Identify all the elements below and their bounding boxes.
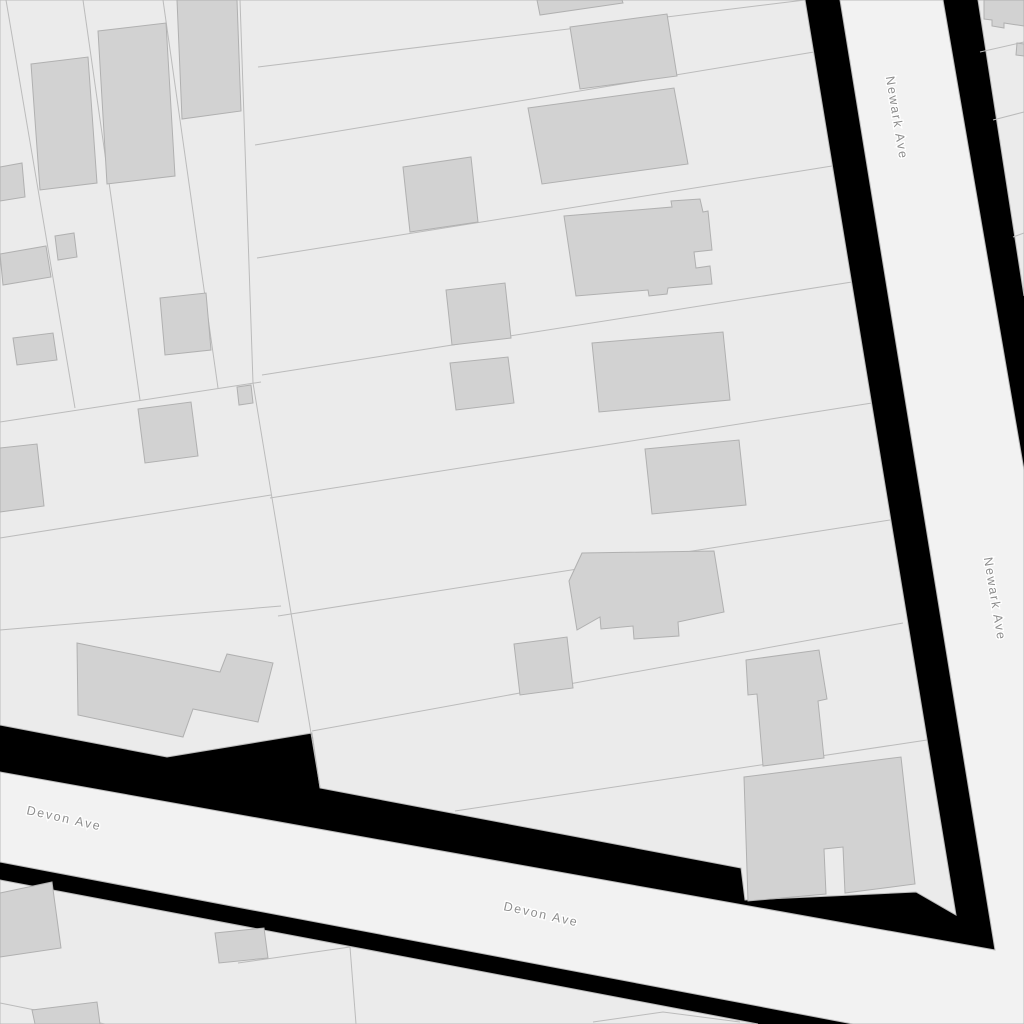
building-footprint [177,0,241,119]
building-footprint [215,928,268,963]
building-footprint [160,293,211,355]
building-footprint [0,882,61,957]
building-footprint [1016,43,1024,56]
building-footprint [450,357,514,410]
map-viewport[interactable]: Newark Ave Newark Ave Devon Ave Devon Av… [0,0,1024,1024]
building-footprint [645,440,746,514]
building-footprint [55,233,77,260]
building-footprint [0,163,25,201]
building-footprint [13,333,57,365]
building-footprint [570,14,677,89]
building-footprint [98,23,175,184]
building-footprint [0,444,44,512]
building-footprint [446,283,511,345]
building-footprint [403,157,478,232]
building-footprint [592,332,730,412]
map-canvas: Newark Ave Newark Ave Devon Ave Devon Av… [0,0,1024,1024]
building-footprint [138,402,198,463]
building-footprint [31,57,97,190]
building-footprint [514,637,573,695]
building-footprint [237,385,253,405]
